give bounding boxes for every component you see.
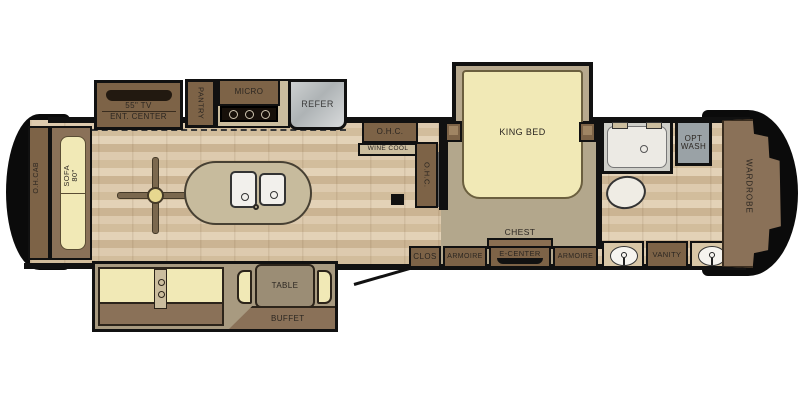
drain-icon xyxy=(270,191,278,199)
burner-icon xyxy=(261,110,270,119)
cupholder-icon xyxy=(158,279,165,286)
faucet-icon xyxy=(253,204,259,210)
chest-label: CHEST xyxy=(487,228,553,237)
wine-cooler-label: WINE COOL xyxy=(368,146,409,153)
faucet-icon xyxy=(711,258,713,265)
drain-icon xyxy=(241,193,249,201)
wine-cooler: WINE COOL xyxy=(358,143,418,156)
shower xyxy=(601,120,673,174)
optional-washer: OPT WASH xyxy=(675,120,712,166)
bedroom-entertainment-center: E-CENTER xyxy=(489,246,551,268)
armoire-right-label: ARMOIRE xyxy=(558,253,593,260)
bedroom-ecenter-label: E-CENTER xyxy=(499,250,541,258)
fan-hub xyxy=(147,187,164,204)
nightstand-left xyxy=(445,122,462,142)
dinette-chair-left xyxy=(237,270,252,304)
vanity-label: VANITY xyxy=(653,251,682,259)
front-sofa-cushion: SOFA 80" xyxy=(60,136,86,250)
overhead-cabinet-galley: O.H.C. xyxy=(362,121,418,143)
nightstand-top xyxy=(583,126,592,135)
front-sofa: SOFA 80" xyxy=(50,126,92,260)
island-sink-right xyxy=(259,173,286,206)
nightstand-right xyxy=(579,122,596,142)
front-sofa-seam xyxy=(61,193,85,194)
dinette-table: TABLE xyxy=(255,264,315,308)
shower-pan xyxy=(607,126,667,168)
island-sink-left xyxy=(230,171,257,208)
shower-control-icon xyxy=(612,122,628,129)
vanity-cabinet: VANITY xyxy=(646,241,688,268)
cooktop xyxy=(220,106,278,122)
closet: CLOS xyxy=(409,246,441,268)
pantry-label: PANTRY xyxy=(197,87,205,119)
rv-floorplan: O.H.CAB SOFA 80" 55" TV ENT. CENTER PANT… xyxy=(0,0,800,400)
opt-wash-label-line2: WASH xyxy=(681,143,706,151)
front-overhead-cabinet: O.H.CAB xyxy=(28,126,50,260)
buffet-label: BUFFET xyxy=(271,315,305,323)
microwave-label: MICRO xyxy=(235,88,264,96)
overhead-cabinet-side-label: O.H.C. xyxy=(423,162,431,187)
front-sofa-label-group: SOFA 80" xyxy=(63,165,79,187)
burner-icon xyxy=(245,110,254,119)
burner-icon xyxy=(229,110,238,119)
hide-a-bed-sofa xyxy=(98,267,224,326)
microwave: MICRO xyxy=(218,79,280,106)
armoire-left: ARMOIRE xyxy=(443,246,487,268)
overhead-cabinet-galley-label: O.H.C. xyxy=(377,128,404,136)
refrigerator-label: REFER xyxy=(301,100,334,109)
nightstand-top xyxy=(449,126,458,135)
cupholder-icon xyxy=(158,291,165,298)
tv-label: 55" TV xyxy=(125,102,151,110)
dinette-chair-right xyxy=(317,270,332,304)
overhead-cabinet-side: O.H.C. xyxy=(415,142,438,208)
tv-icon xyxy=(106,90,172,101)
vanity-counter-left xyxy=(602,241,644,268)
kitchen-wall-stub xyxy=(391,194,404,205)
wardrobe-label: WARDROBE xyxy=(744,159,752,214)
pantry: PANTRY xyxy=(185,79,216,128)
armoire-right: ARMOIRE xyxy=(553,246,598,268)
armoire-left-label: ARMOIRE xyxy=(447,253,482,260)
front-overhead-cabinet-label: O.H.CAB xyxy=(33,162,40,194)
bottom-wall-front xyxy=(24,263,98,269)
living-slide: TABLE BUFFET xyxy=(92,261,338,332)
closet-label: CLOS xyxy=(413,253,436,261)
entertainment-center: 55" TV ENT. CENTER xyxy=(94,80,183,130)
table-label: TABLE xyxy=(272,282,299,290)
bedroom-tv-icon xyxy=(497,258,543,264)
drain-icon xyxy=(640,145,648,153)
sofa-console xyxy=(154,269,167,309)
king-bed-label: KING BED xyxy=(464,128,581,137)
ent-center-label: ENT. CENTER xyxy=(110,113,167,121)
faucet-icon xyxy=(623,258,625,265)
front-sofa-size-label: 80" xyxy=(71,165,79,187)
refrigerator: REFER xyxy=(288,79,347,130)
buffet: BUFFET xyxy=(229,306,335,329)
king-bed: KING BED xyxy=(462,70,583,199)
shower-control-icon xyxy=(646,122,662,129)
